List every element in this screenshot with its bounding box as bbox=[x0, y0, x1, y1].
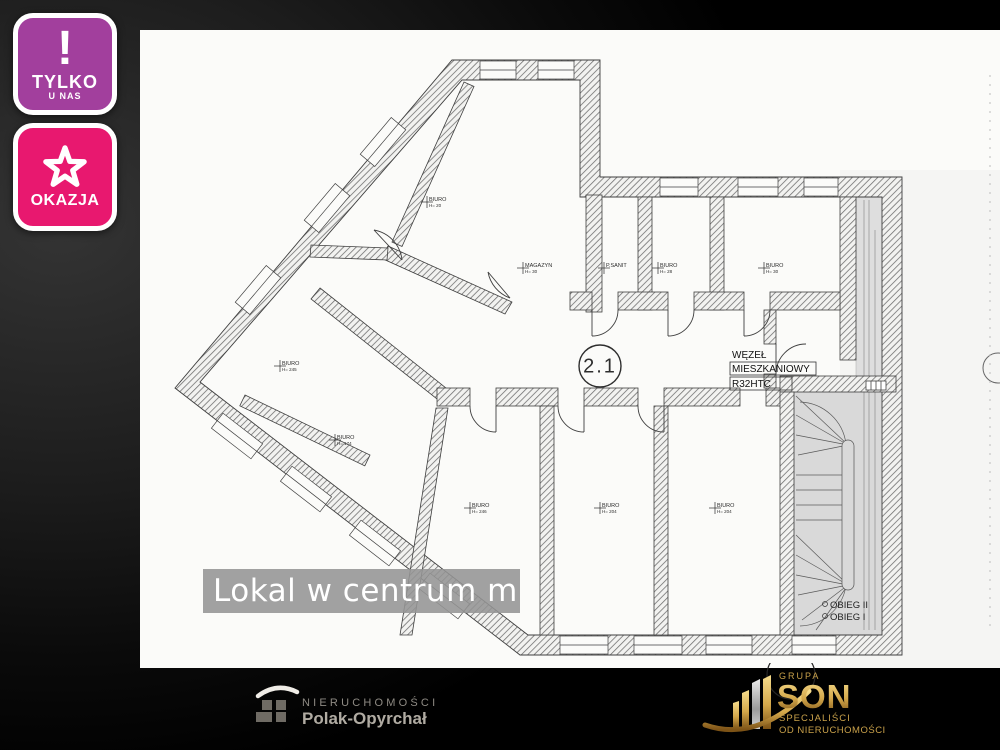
unit-circle: 2.1 bbox=[579, 345, 621, 387]
room-label-5: BIURO H= 245 bbox=[274, 360, 300, 372]
room-labels: BIURO H= 20 MAGAZYN H= 30 P.SANIT BIURO … bbox=[274, 196, 784, 514]
unit-circle-label: 2.1 bbox=[583, 355, 617, 377]
badge-tylko-line2: U NAS bbox=[48, 91, 81, 101]
svg-text:H= 204: H= 204 bbox=[717, 509, 732, 514]
star-icon bbox=[41, 145, 89, 191]
svg-text:H= 174: H= 174 bbox=[337, 441, 352, 446]
radiator bbox=[866, 381, 886, 390]
room-label-9: BIURO H= 204 bbox=[709, 502, 735, 514]
svg-text:H= 28: H= 28 bbox=[660, 269, 673, 274]
agency-name-line2: Polak-Opyrchał bbox=[302, 709, 427, 728]
group-name: SON bbox=[777, 678, 852, 715]
agency-name-line1: NIERUCHOMOŚCI bbox=[302, 696, 438, 709]
svg-text:H= 30: H= 30 bbox=[766, 269, 779, 274]
svg-text:H= 30: H= 30 bbox=[525, 269, 538, 274]
svg-text:H= 245: H= 245 bbox=[282, 367, 297, 372]
badge-tylko-line1: TYLKO bbox=[32, 73, 98, 91]
agency-arc-icon bbox=[258, 688, 297, 696]
room-label-4: BIURO H= 30 bbox=[758, 262, 784, 274]
node-line2: MIESZKANIOWY bbox=[732, 364, 810, 375]
svg-text:H= 246: H= 246 bbox=[472, 509, 487, 514]
svg-text:H= 20: H= 20 bbox=[429, 203, 442, 208]
group-logo: GRUPA SON SPECJALIŚCI OD NIERUCHOMOŚCI bbox=[695, 663, 895, 750]
badge-okazja-label: OKAZJA bbox=[31, 193, 100, 209]
node-line1: WĘZEŁ bbox=[732, 350, 767, 361]
svg-text:P.SANIT: P.SANIT bbox=[606, 263, 627, 269]
group-sub1: SPECJALIŚCI bbox=[779, 712, 851, 724]
caption: Lokal w centrum miasta bbox=[203, 569, 520, 613]
room-label-1: MAGAZYN H= 30 bbox=[517, 262, 552, 274]
room-label-3: BIURO H= 28 bbox=[652, 262, 678, 274]
agency-logo: NIERUCHOMOŚCI Polak-Opyrchał bbox=[250, 680, 450, 732]
badge-okazja: OKAZJA bbox=[13, 123, 117, 231]
room-label-8: BIURO H= 204 bbox=[594, 502, 620, 514]
stair-flight1-label: OBIEG I bbox=[830, 612, 865, 623]
node-line3: R32HTC bbox=[732, 379, 771, 390]
room-label-0: BIURO H= 20 bbox=[421, 196, 447, 208]
agency-building-icon bbox=[256, 700, 286, 722]
stair-flight2-label: OBIEG II bbox=[830, 600, 868, 611]
exclamation-icon: ! bbox=[57, 29, 73, 69]
room-label-7: BIURO H= 246 bbox=[464, 502, 490, 514]
listing-image: { "badges": { "tylko": {"icon": "!", "li… bbox=[0, 0, 1000, 750]
group-sub2: OD NIERUCHOMOŚCI bbox=[779, 724, 886, 736]
badge-tylko-u-nas: ! TYLKO U NAS bbox=[13, 13, 117, 115]
svg-text:H= 204: H= 204 bbox=[602, 509, 617, 514]
